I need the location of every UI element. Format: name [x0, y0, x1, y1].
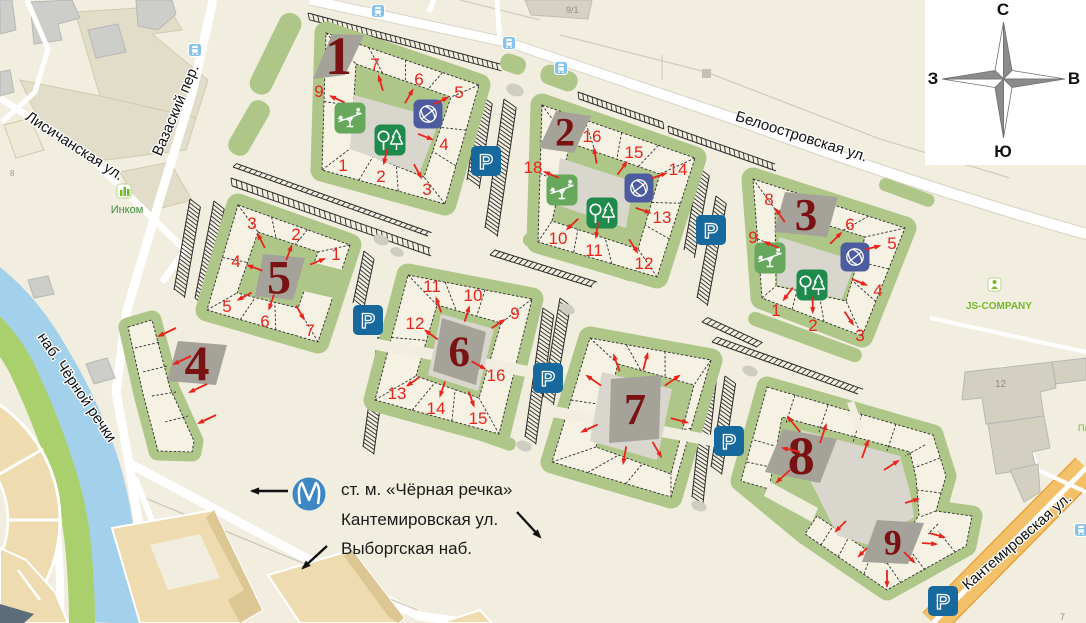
svg-text:ст. м. «Чёрная речка»: ст. м. «Чёрная речка»	[341, 480, 512, 499]
svg-text:JS-COMPANY: JS-COMPANY	[966, 301, 1032, 312]
svg-text:7: 7	[1060, 612, 1065, 622]
svg-text:8: 8	[10, 169, 15, 178]
svg-text:10: 10	[549, 229, 568, 248]
svg-text:6: 6	[260, 312, 269, 331]
svg-text:3: 3	[855, 326, 864, 345]
svg-text:8: 8	[788, 426, 815, 486]
svg-text:16: 16	[583, 127, 602, 146]
svg-text:5: 5	[222, 297, 231, 316]
svg-text:15: 15	[625, 143, 644, 162]
svg-text:14: 14	[669, 160, 688, 179]
svg-text:14: 14	[427, 399, 446, 418]
svg-text:P: P	[704, 220, 718, 243]
svg-text:1: 1	[338, 156, 347, 175]
svg-text:4: 4	[873, 281, 882, 300]
svg-text:2: 2	[376, 167, 385, 186]
svg-text:2: 2	[808, 316, 817, 335]
svg-text:7: 7	[370, 55, 379, 74]
svg-text:P: P	[541, 368, 555, 391]
svg-text:4: 4	[185, 335, 210, 391]
svg-text:В: В	[1068, 69, 1080, 88]
svg-text:Выборгская наб.: Выборгская наб.	[341, 539, 472, 558]
svg-text:3: 3	[795, 190, 818, 240]
svg-text:12: 12	[406, 314, 425, 333]
svg-text:8: 8	[764, 190, 773, 209]
svg-text:6: 6	[414, 70, 423, 89]
svg-text:P: P	[936, 591, 950, 614]
svg-text:2: 2	[291, 225, 300, 244]
svg-text:4: 4	[231, 252, 240, 271]
svg-text:6: 6	[845, 215, 854, 234]
svg-text:1: 1	[771, 301, 780, 320]
svg-text:16: 16	[487, 366, 506, 385]
svg-text:9: 9	[510, 304, 519, 323]
svg-text:7: 7	[305, 321, 314, 340]
svg-text:5: 5	[887, 234, 896, 253]
svg-text:11: 11	[423, 277, 441, 296]
svg-text:7: 7	[624, 385, 646, 434]
svg-text:С: С	[997, 0, 1009, 19]
svg-text:9/1: 9/1	[566, 5, 579, 15]
svg-text:13: 13	[388, 384, 407, 403]
svg-text:Па: Па	[1078, 423, 1086, 433]
svg-text:Инком: Инком	[111, 204, 144, 216]
svg-text:1: 1	[331, 245, 340, 264]
svg-text:6: 6	[448, 329, 470, 376]
svg-text:P: P	[361, 310, 375, 333]
svg-text:З: З	[928, 69, 939, 88]
svg-text:1: 1	[325, 26, 352, 86]
svg-text:Ю: Ю	[994, 142, 1012, 161]
svg-text:9: 9	[748, 228, 757, 247]
svg-text:P: P	[722, 431, 736, 454]
svg-text:18: 18	[524, 158, 543, 177]
svg-text:13: 13	[653, 208, 672, 227]
svg-text:3: 3	[247, 214, 256, 233]
svg-text:2: 2	[555, 110, 575, 155]
svg-text:Кантемировская ул.: Кантемировская ул.	[341, 510, 498, 529]
svg-text:12: 12	[995, 379, 1007, 390]
svg-text:9: 9	[314, 82, 323, 101]
svg-text:12: 12	[635, 254, 654, 273]
svg-text:11: 11	[585, 241, 603, 260]
svg-text:4: 4	[439, 135, 448, 154]
svg-text:9: 9	[884, 523, 902, 563]
svg-text:15: 15	[469, 409, 488, 428]
svg-text:10: 10	[464, 286, 483, 305]
svg-text:3: 3	[422, 180, 431, 199]
svg-text:P: P	[479, 151, 493, 174]
svg-text:5: 5	[454, 83, 463, 102]
